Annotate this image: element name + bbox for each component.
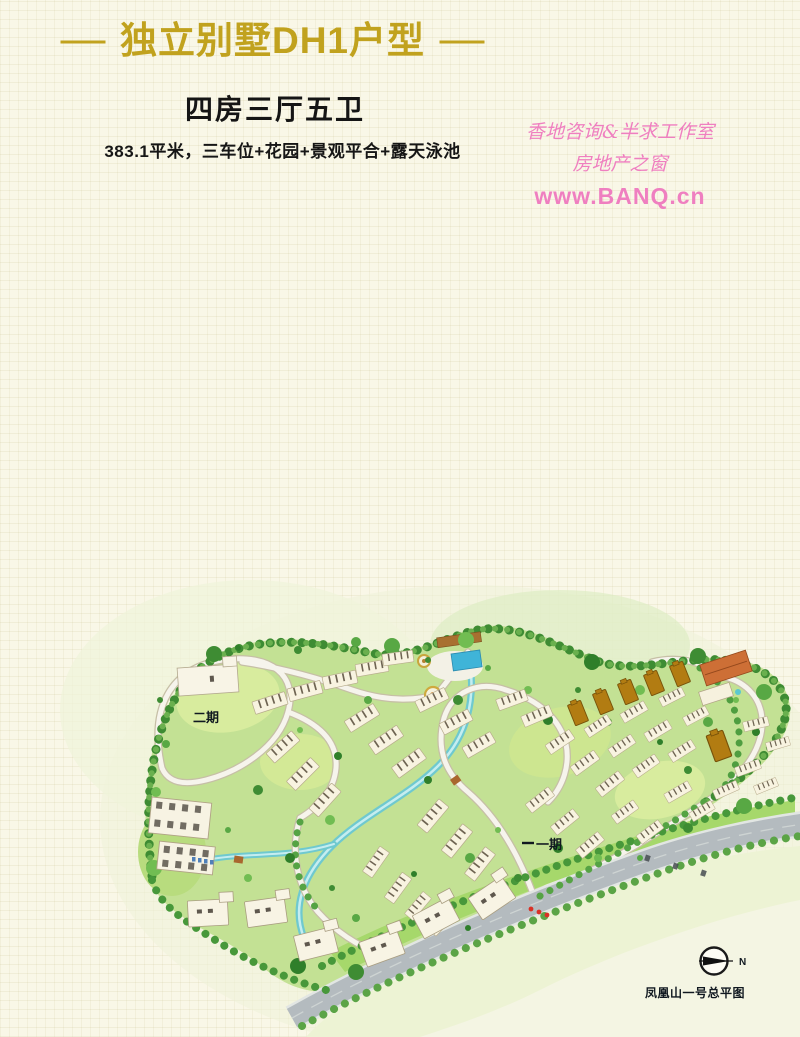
tree: [325, 815, 335, 825]
tree: [225, 827, 231, 833]
tree: [348, 964, 364, 980]
flyer-page: 二期 一期 N 凤凰山一号总平图 — 独立别墅DH1户型 — 四房三厅五卫 38…: [0, 0, 800, 1037]
tree: [425, 657, 431, 663]
title-text: 独立别墅DH1户型: [120, 22, 425, 59]
tree: [384, 638, 400, 654]
apartment-block: [157, 841, 216, 875]
tree: [151, 787, 161, 797]
phase1-label: 一期: [536, 837, 562, 852]
plan-caption: 凤凰山一号总平图: [645, 985, 745, 1000]
tree: [162, 740, 170, 748]
subtitle: 四房三厅五卫: [0, 88, 550, 128]
tree: [703, 717, 713, 727]
tree: [364, 696, 372, 704]
tree: [157, 697, 163, 703]
tree: [235, 645, 241, 651]
tree: [637, 855, 643, 861]
specs-line: 383.1平米，三车位+花园+景观平合+露天泳池: [0, 137, 565, 162]
pond-dot: [735, 689, 741, 695]
apartment-block: [148, 797, 211, 839]
tree: [485, 665, 491, 671]
tree: [424, 776, 432, 784]
tree: [285, 853, 295, 863]
tree: [206, 646, 222, 662]
tree: [514, 874, 522, 882]
tree: [329, 885, 335, 891]
tree: [411, 871, 417, 877]
phase2-label: 二期: [193, 710, 219, 725]
watermark: 香地咨询&半求工作室 房地产之窗 www.BANQ.cn: [490, 123, 750, 208]
tree: [683, 823, 693, 833]
tree: [575, 687, 581, 693]
tree: [733, 697, 739, 703]
title-dash-right: —: [440, 24, 485, 58]
tree: [657, 739, 663, 745]
tree: [334, 752, 342, 760]
tree: [736, 798, 752, 814]
watermark-window: 房地产之窗: [490, 155, 750, 174]
title-dash-left: —: [60, 24, 105, 58]
tree: [253, 785, 263, 795]
compass-north-label: N: [739, 957, 746, 968]
tree: [690, 648, 706, 664]
tree: [294, 646, 302, 654]
page-title: — 独立别墅DH1户型 —: [0, 22, 545, 59]
tree: [584, 654, 600, 670]
swimming-pool: [451, 650, 482, 671]
watermark-studio: 香地咨询&半求工作室: [490, 123, 750, 142]
tree: [465, 925, 471, 931]
tree: [756, 684, 772, 700]
watermark-url: www.BANQ.cn: [490, 185, 750, 208]
tree: [458, 632, 474, 648]
tree: [453, 695, 463, 705]
tree: [297, 727, 303, 733]
tree: [351, 637, 361, 647]
tree: [352, 914, 360, 922]
tree: [495, 827, 501, 833]
tree: [244, 874, 252, 882]
tree: [594, 854, 602, 862]
tree: [684, 766, 692, 774]
